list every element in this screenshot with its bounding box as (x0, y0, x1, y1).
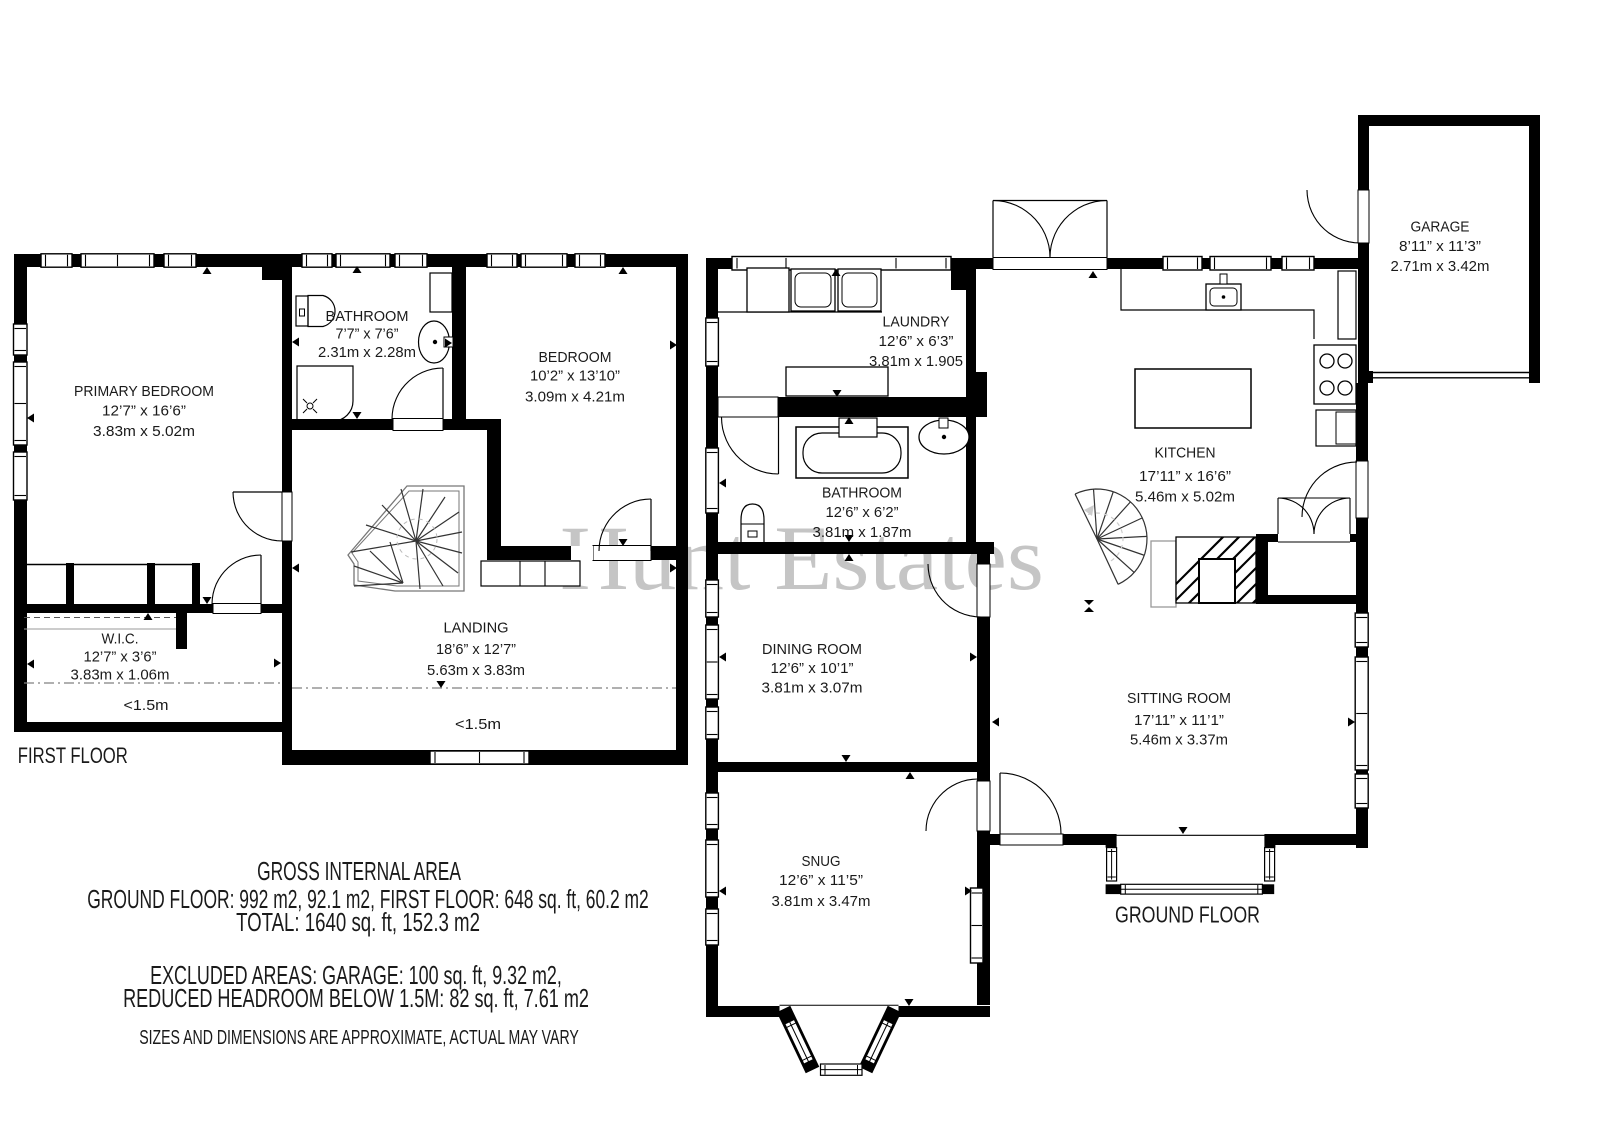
svg-text:2.31m x 2.28m: 2.31m x 2.28m (318, 345, 416, 361)
svg-text:FIRST FLOOR: FIRST FLOOR (18, 744, 128, 769)
svg-text:3.09m x 4.21m: 3.09m x 4.21m (525, 390, 625, 406)
svg-text:PRIMARY BEDROOM: PRIMARY BEDROOM (74, 384, 214, 400)
svg-text:5.46m x 5.02m: 5.46m x 5.02m (1135, 490, 1235, 506)
svg-text:12’6” x 10’1”: 12’6” x 10’1” (771, 661, 854, 677)
svg-text:W.I.C.: W.I.C. (102, 630, 139, 647)
svg-text:18’6” x 12’7”: 18’6” x 12’7” (436, 642, 516, 658)
svg-text:DINING ROOM: DINING ROOM (762, 642, 862, 658)
svg-text:17’11” x 16’6”: 17’11” x 16’6” (1139, 468, 1231, 485)
svg-text:LANDING: LANDING (443, 621, 508, 637)
svg-text:3.83m x 1.06m: 3.83m x 1.06m (71, 668, 170, 684)
svg-text:BATHROOM: BATHROOM (326, 309, 409, 325)
svg-text:KITCHEN: KITCHEN (1155, 445, 1216, 461)
svg-text:3.81m x 1.905: 3.81m x 1.905 (869, 354, 963, 370)
svg-text:GROSS INTERNAL AREA: GROSS INTERNAL AREA (257, 857, 461, 886)
svg-text:SNUG: SNUG (802, 853, 841, 870)
svg-text:2.71m x 3.42m: 2.71m x 3.42m (1391, 259, 1490, 275)
svg-text:BEDROOM: BEDROOM (539, 350, 612, 366)
svg-text:3.81m x 3.07m: 3.81m x 3.07m (761, 680, 862, 697)
svg-text:12’7” x 3’6”: 12’7” x 3’6” (84, 650, 157, 666)
svg-text:LAUNDRY: LAUNDRY (883, 314, 950, 330)
svg-text:GROUND FLOOR: GROUND FLOOR (1115, 902, 1260, 928)
svg-text:12’6” x 6’3”: 12’6” x 6’3” (879, 334, 954, 350)
svg-text:8’11” x 11’3”: 8’11” x 11’3” (1399, 238, 1481, 255)
svg-text:3.83m x 5.02m: 3.83m x 5.02m (93, 423, 195, 440)
svg-text:<1.5m: <1.5m (455, 717, 501, 733)
svg-text:12’6” x 11’5”: 12’6” x 11’5” (779, 872, 863, 888)
svg-text:3.81m x 3.47m: 3.81m x 3.47m (772, 894, 871, 910)
svg-text:5.46m x 3.37m: 5.46m x 3.37m (1130, 733, 1228, 749)
svg-text:17’11” x 11’1”: 17’11” x 11’1” (1134, 713, 1224, 729)
svg-text:SITTING ROOM: SITTING ROOM (1127, 691, 1231, 707)
svg-text:REDUCED HEADROOM BELOW 1.5M: 8: REDUCED HEADROOM BELOW 1.5M: 82 sq. ft, … (123, 984, 589, 1013)
svg-text:SIZES AND DIMENSIONS ARE APPRO: SIZES AND DIMENSIONS ARE APPROXIMATE, AC… (139, 1026, 579, 1049)
svg-text:GARAGE: GARAGE (1411, 219, 1470, 235)
svg-text:10’2” x 13’10”: 10’2” x 13’10” (530, 369, 620, 385)
svg-text:BATHROOM: BATHROOM (822, 485, 902, 501)
svg-text:5.63m x 3.83m: 5.63m x 3.83m (427, 663, 525, 679)
svg-text:TOTAL: 1640 sq. ft, 152.3 m2: TOTAL: 1640 sq. ft, 152.3 m2 (236, 908, 480, 937)
svg-text:3.81m x 1.87m: 3.81m x 1.87m (813, 525, 912, 541)
svg-text:<1.5m: <1.5m (124, 698, 169, 714)
svg-text:12’6” x 6’2”: 12’6” x 6’2” (826, 505, 899, 521)
svg-text:7’7” x 7’6”: 7’7” x 7’6” (336, 326, 399, 342)
svg-text:12’7” x 16’6”: 12’7” x 16’6” (102, 403, 186, 420)
